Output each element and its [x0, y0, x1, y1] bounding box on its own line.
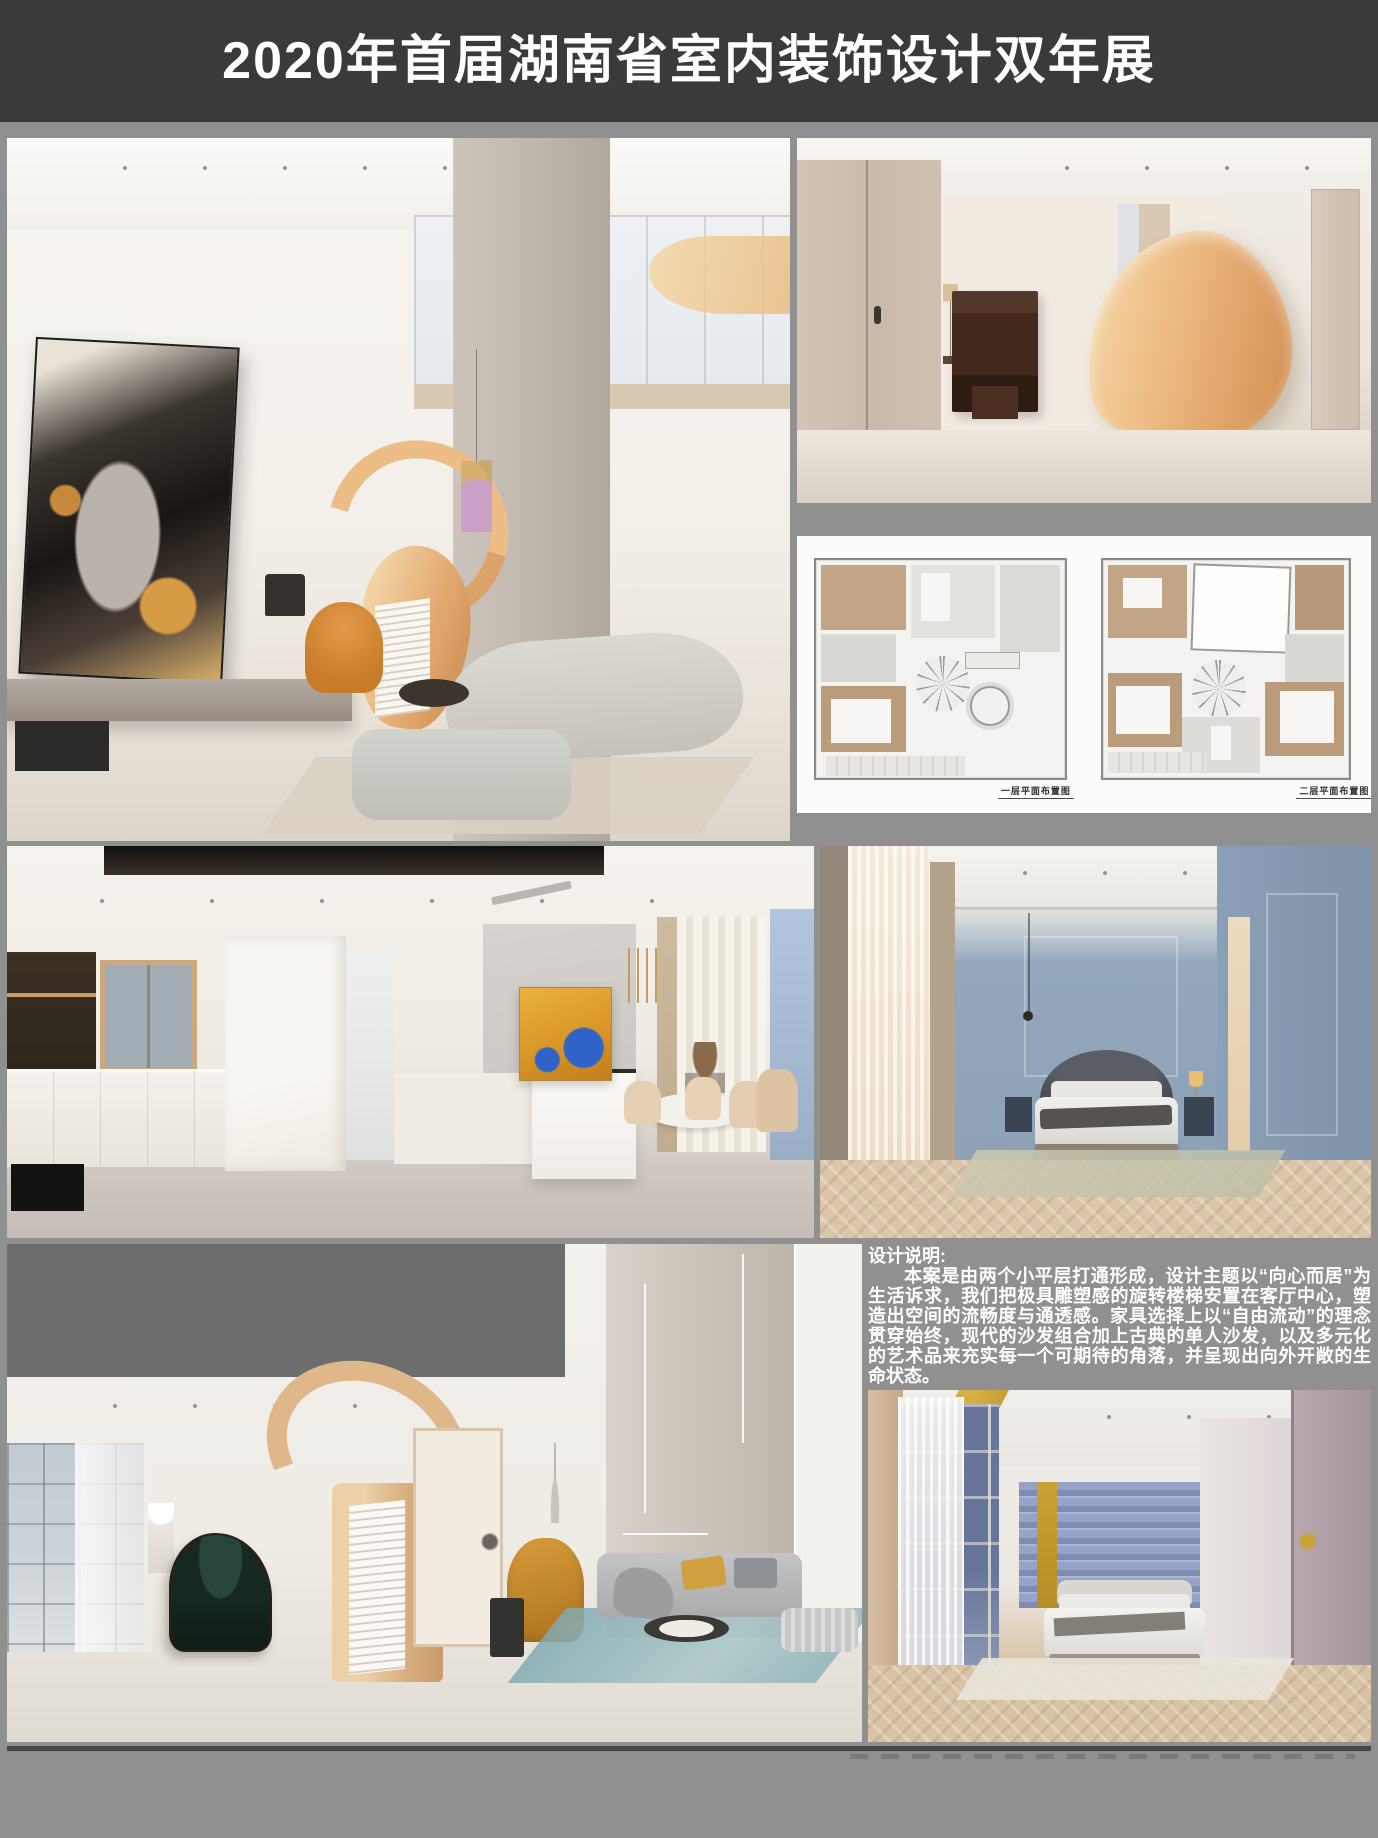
exhibition-board: 2020年首届湖南省室内装饰设计双年展	[0, 0, 1378, 1838]
downlights-shape	[1027, 145, 1360, 182]
lilac-door-shape	[1291, 1390, 1371, 1693]
plan-desk-shape	[1123, 578, 1162, 608]
page-title: 2020年首届湖南省室内装饰设计双年展	[0, 0, 1378, 122]
rug-shape	[955, 1658, 1293, 1700]
floor-plan-level-2	[1101, 558, 1351, 780]
plan-bath-shape	[1285, 634, 1344, 686]
door-handle-shape	[874, 306, 881, 324]
right-wall-shape	[1200, 1418, 1291, 1671]
sheer-curtain-shape	[848, 846, 931, 1175]
plan-dining-table-shape	[970, 686, 1010, 725]
mezzanine-dark-band-shape	[104, 846, 604, 875]
bench-cabinet-shape	[15, 721, 109, 770]
white-cabinets-shape	[7, 1069, 225, 1167]
plan-kitchen-area-shape	[1000, 565, 1060, 652]
classic-column-lamp-shape	[148, 1503, 174, 1573]
piano-bench-shape	[972, 386, 1018, 419]
title-bar: 2020年首届湖南省室内装饰设计双年展	[0, 0, 1378, 122]
glossy-panel-shape	[346, 952, 394, 1160]
photo-living-room-double-height	[7, 138, 790, 841]
ottoman-shape	[352, 729, 571, 820]
nightstand-shape	[1184, 1097, 1214, 1136]
plan-balcony-shape	[1108, 752, 1206, 774]
statue-artwork-shape	[18, 337, 239, 685]
abstract-artwork-shape	[519, 987, 612, 1081]
taupe-drape-shape	[930, 862, 955, 1176]
wall-light-line-shape	[644, 1284, 646, 1513]
ottoman-shape	[781, 1608, 858, 1653]
plan-balcony-shape	[826, 756, 965, 776]
brass-lamp-shape	[1189, 1071, 1203, 1096]
plan-spiral-stair-shape	[1192, 660, 1246, 717]
green-baroque-chair-shape	[169, 1533, 272, 1653]
board-shadow-line	[7, 1746, 1371, 1751]
throw-blanket-shape	[1040, 1104, 1173, 1128]
plan-bar-shape	[965, 652, 1020, 669]
door-wall-shape	[797, 160, 941, 437]
photo-living-room-spiral-stair	[7, 1244, 862, 1742]
plan-spiral-stair-shape	[916, 656, 971, 713]
far-right-wall-shape	[794, 1244, 862, 1642]
plan-bed-shape	[1116, 686, 1170, 734]
marble-column-shape	[225, 936, 346, 1171]
downlights-shape	[985, 850, 1233, 881]
downlights-shape	[47, 881, 733, 928]
pendant-lights-shape	[461, 349, 492, 532]
sheer-curtain-shape	[898, 1397, 963, 1700]
built-in-oven-shape	[11, 1164, 84, 1211]
description-heading: 设计说明:	[868, 1246, 1371, 1266]
dark-chair-shape	[265, 574, 304, 616]
cushion-shape	[681, 1555, 727, 1591]
plan-bed-shape	[1280, 691, 1334, 743]
dining-chair-shape	[685, 1077, 721, 1120]
panel-frame-shape	[1266, 893, 1338, 1136]
plan-bed-shape	[831, 699, 891, 743]
plan-wood-room-shape	[821, 565, 906, 630]
design-description: 设计说明: 本案是由两个小平层打通形成，设计主题以“向心而居”为生活诉求，我们把…	[868, 1246, 1371, 1388]
floor-plan-level-1	[814, 558, 1067, 780]
photo-hallway-piano	[797, 138, 1371, 503]
photo-kitchen-dining	[7, 846, 814, 1238]
mid-cabinets-shape	[394, 1073, 531, 1163]
door-seam-shape	[866, 160, 868, 437]
plan-sofa-shape	[921, 573, 951, 621]
stair-steps-shape	[349, 1500, 405, 1675]
tufted-chair-shape	[756, 1069, 798, 1132]
cushion-shape	[734, 1558, 777, 1588]
dining-chair-shape	[624, 1081, 660, 1124]
kitchen-window-shape	[100, 960, 197, 1074]
wall-light-bar-shape	[623, 1533, 709, 1535]
nightstand-shape	[1005, 1097, 1033, 1132]
tv-bench-shape	[7, 679, 352, 721]
warm-light-slot-shape	[1228, 917, 1250, 1152]
gold-band-vertical-shape	[1037, 1482, 1057, 1609]
rug-shape	[950, 1150, 1286, 1197]
right-door-shape	[1311, 189, 1360, 430]
floor-plan-sheet: 一层平面布置图 二层平面布置图	[797, 536, 1371, 813]
description-body: 本案是由两个小平层打通形成，设计主题以“向心而居”为生活诉求，我们把极具雕塑感的…	[868, 1266, 1371, 1386]
plan-bath-shape	[821, 634, 896, 682]
floor-plan-caption-1: 一层平面布置图	[998, 784, 1074, 799]
plan-void-over-living-shape	[1190, 563, 1291, 653]
plan-laundry-shape	[1211, 726, 1231, 761]
floor-plan-caption-2: 二层平面布置图	[1296, 784, 1371, 799]
photo-bedroom-night	[868, 1390, 1371, 1742]
plan-wood-room-shape	[1295, 565, 1344, 630]
sheer-curtain-shape	[75, 1443, 152, 1652]
dark-drape-shape	[820, 846, 848, 1175]
wall-light-line-shape	[742, 1254, 744, 1443]
fine-print-marks	[850, 1754, 1355, 1759]
island-counter-shape	[532, 1069, 637, 1179]
photo-bedroom-blue	[820, 846, 1371, 1238]
side-table-shape	[490, 1598, 524, 1658]
orange-armchair-shape	[305, 602, 383, 693]
floor-shape	[797, 430, 1371, 503]
pendant-lamp-shape	[546, 1443, 565, 1523]
pendant-cord-shape	[1028, 913, 1030, 1015]
gray-mask-block-shape	[7, 1244, 565, 1377]
